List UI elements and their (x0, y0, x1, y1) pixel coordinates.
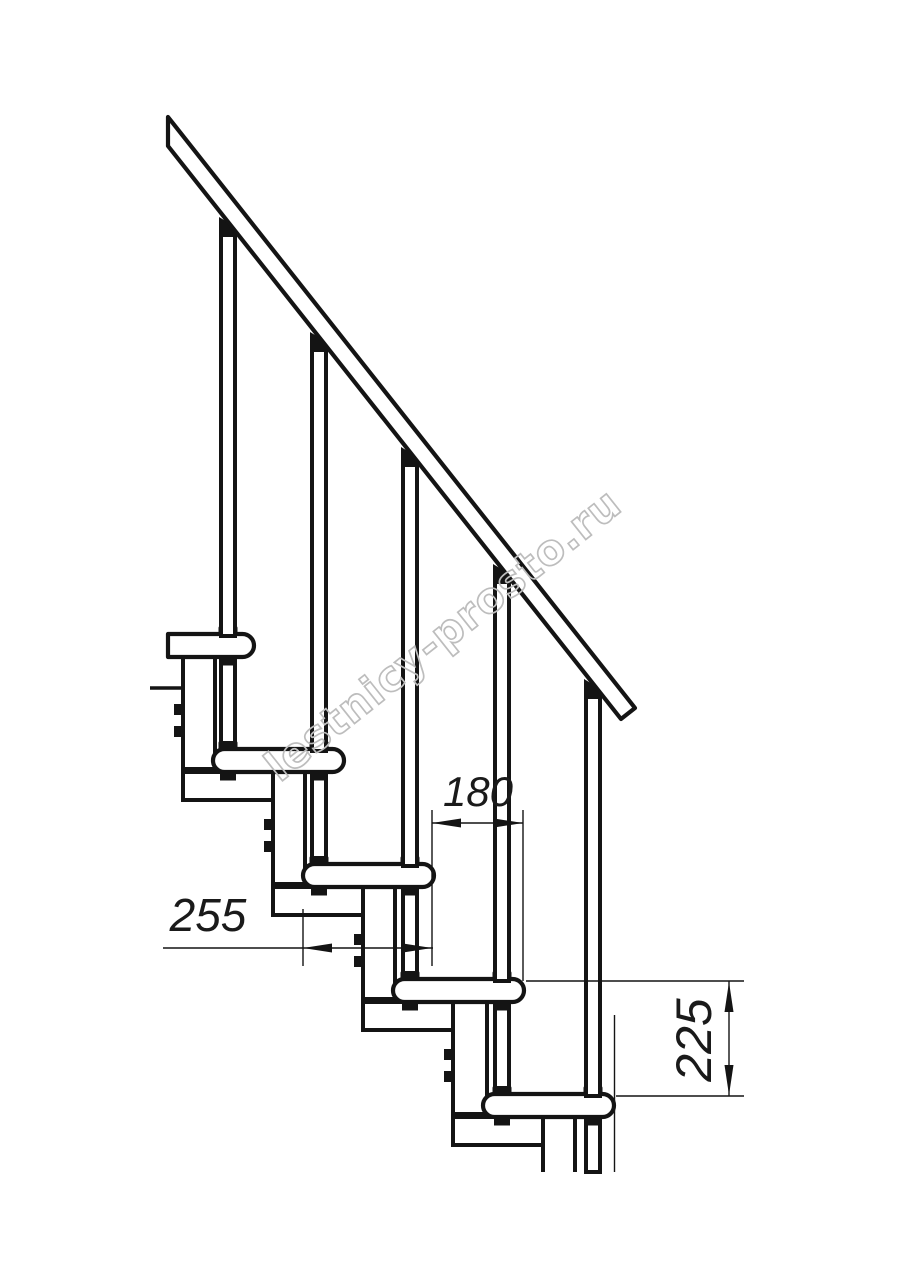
staircase-drawing-page: 180 255 225 lestnicy-prosto.ru (0, 0, 914, 1280)
dimension-255-label: 255 (169, 889, 247, 941)
support-bolt (444, 1071, 454, 1082)
post-nut (311, 887, 327, 896)
baluster-1 (221, 235, 235, 636)
rod-4 (495, 1000, 509, 1096)
post-nut (402, 887, 418, 896)
post-flange (401, 971, 420, 980)
dimension-225-label: 225 (666, 998, 722, 1083)
rod-3 (403, 885, 417, 981)
arrowhead-down (725, 1065, 734, 1095)
support-bolt (354, 956, 364, 967)
baluster-2 (312, 350, 326, 751)
post-nut (585, 1117, 601, 1126)
post-flange (219, 741, 238, 750)
post-flange (310, 856, 329, 865)
support-bolt (264, 841, 274, 852)
staircase-technical-drawing: 180 255 225 lestnicy-prosto.ru (0, 0, 914, 1280)
arrowhead-up (725, 982, 734, 1012)
arrowhead-left (303, 944, 332, 953)
support-neck-2 (183, 655, 215, 769)
support-bolt (444, 1049, 454, 1060)
tread-1 (168, 634, 254, 657)
dimension-225: 225 (526, 981, 744, 1172)
arrowhead-left (432, 819, 461, 828)
post-nut (494, 1117, 510, 1126)
support-bolt (264, 819, 274, 830)
rod-2 (312, 770, 326, 866)
post-nut (402, 1002, 418, 1011)
post-nut (494, 1002, 510, 1011)
support-neck-5 (453, 1000, 487, 1114)
support-bolt (174, 704, 184, 715)
post-nut (220, 657, 236, 666)
support-bolt (174, 726, 184, 737)
post-nut (220, 772, 236, 781)
support-neck-4 (363, 885, 395, 999)
baluster-5 (586, 697, 600, 1096)
support-neck-6-cut (543, 1117, 575, 1172)
post-flange (493, 1086, 512, 1095)
support-bolt (354, 934, 364, 945)
rod-1 (221, 655, 235, 751)
post-nut (311, 772, 327, 781)
dimension-180-label: 180 (443, 768, 514, 815)
